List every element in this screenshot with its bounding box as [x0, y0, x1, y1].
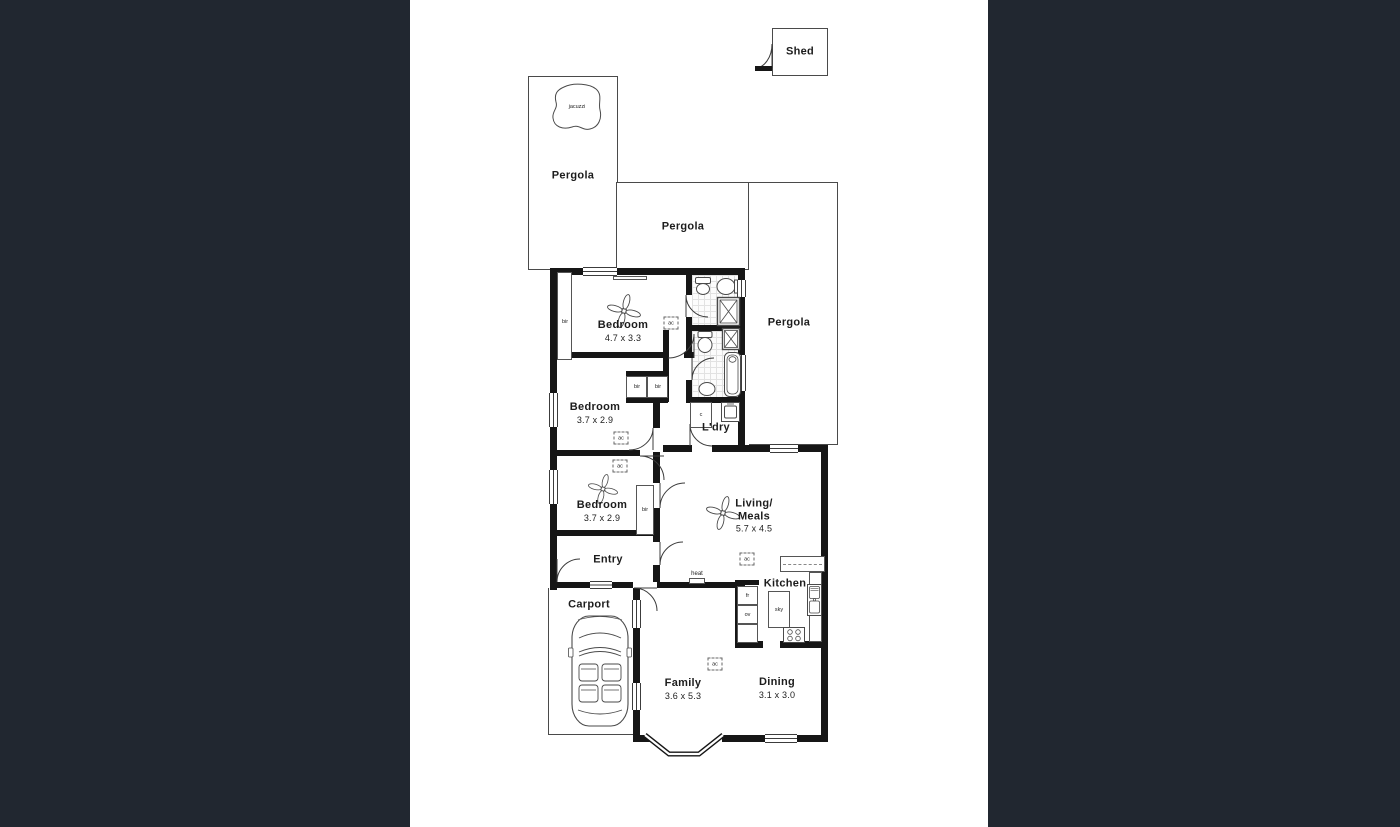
room-label-family: Family3.6 x 5.3 [665, 677, 702, 701]
skylight-label: sky [775, 607, 783, 613]
car-icon [568, 612, 632, 730]
ac-marker: ac [613, 460, 628, 473]
window [590, 581, 612, 589]
shower-icon [717, 297, 740, 326]
wall [712, 445, 738, 452]
door-arc-bedroom2 [629, 428, 653, 450]
fridge-box: fr [737, 586, 758, 605]
door-arc-family [634, 588, 657, 611]
ac-marker: ac [740, 553, 755, 566]
toilet-icon [696, 331, 715, 354]
wall [612, 582, 633, 588]
door-arc-entry-living [660, 542, 683, 565]
door-arc-entry [557, 559, 580, 582]
sidebar-right [988, 0, 1400, 827]
wall [821, 445, 828, 742]
wall [740, 580, 759, 585]
room-label-pergola-right: Pergola [768, 317, 810, 330]
shed-door-arc [755, 44, 772, 68]
room-label-laundry: L'dry [702, 422, 730, 435]
kitchen-cabinet [737, 624, 758, 643]
room-label-dining: Dining3.1 x 3.0 [759, 676, 795, 700]
room-label-bedroom2: Bedroom3.7 x 2.9 [570, 401, 620, 425]
window [549, 470, 558, 504]
shower-icon [722, 328, 740, 350]
room-label-bedroom1: Bedroom4.7 x 3.3 [598, 319, 648, 343]
window [549, 393, 558, 427]
room-label-bedroom3: Bedroom3.7 x 2.9 [577, 499, 627, 523]
ac-marker: ac [664, 317, 679, 330]
window [583, 267, 617, 276]
wall [550, 450, 640, 456]
door-arc-bathroom [692, 358, 714, 380]
fridge-label: fr [746, 593, 749, 599]
bir-label: bir [655, 384, 661, 390]
toilet-icon [694, 277, 713, 296]
floorplan-canvas: jacuzzi [410, 0, 988, 827]
room-label-pergola-left: Pergola [552, 170, 594, 183]
floorplan-page: jacuzzi [0, 0, 1400, 827]
room-label-shed: Shed [786, 46, 814, 59]
door-arc-ensuite [686, 295, 708, 317]
oven-label: ov [745, 612, 751, 618]
oven-box: ov [737, 605, 758, 624]
door-arc-bedroom3 [640, 456, 664, 480]
basin-icon [698, 381, 716, 397]
room-label-pergola-mid: Pergola [662, 221, 704, 234]
wall [653, 402, 660, 428]
stove-icon [783, 627, 805, 643]
window [632, 683, 641, 710]
island-bench: sky [768, 591, 790, 628]
sidebar-left [0, 0, 410, 827]
bay-window [638, 733, 728, 759]
wall [551, 582, 590, 588]
room-label-living: Living/Meals5.7 x 4.5 [735, 498, 773, 535]
ac-marker: ac [614, 432, 629, 445]
bir-label: bir [562, 319, 568, 325]
jacuzzi-icon [546, 83, 610, 143]
laundry-trough-icon [721, 402, 740, 422]
room-label-carport: Carport [568, 599, 610, 612]
wardrobe [557, 272, 572, 360]
cupboard-label: c [700, 412, 703, 418]
room-label-kitchen: Kitchen [764, 578, 806, 591]
bir-label: bir [642, 507, 648, 513]
pergola-right-area [749, 182, 838, 445]
jacuzzi-label: jacuzzi [569, 104, 586, 110]
room-label-entry: Entry [593, 554, 623, 567]
window [765, 734, 797, 743]
wall [626, 398, 668, 403]
wall [653, 565, 660, 582]
heater-box [689, 578, 705, 584]
wall [550, 268, 745, 275]
window [737, 280, 746, 297]
door-arc-hall-living [660, 483, 685, 508]
wall [550, 268, 557, 590]
bathtub-icon [724, 352, 741, 397]
wall [653, 508, 660, 542]
window [770, 444, 798, 453]
basin-icon [716, 277, 738, 296]
window-sill [613, 276, 647, 280]
kitchen-sink-icon [807, 584, 822, 616]
ac-marker: ac [708, 658, 723, 671]
wall [686, 268, 692, 295]
heater-label: heat [691, 571, 703, 577]
kitchen-bench [780, 556, 825, 572]
shed-door-jamb [755, 66, 772, 71]
bir-label: bir [634, 384, 640, 390]
door-arc-bedroom1 [668, 334, 694, 358]
wall [663, 445, 692, 452]
